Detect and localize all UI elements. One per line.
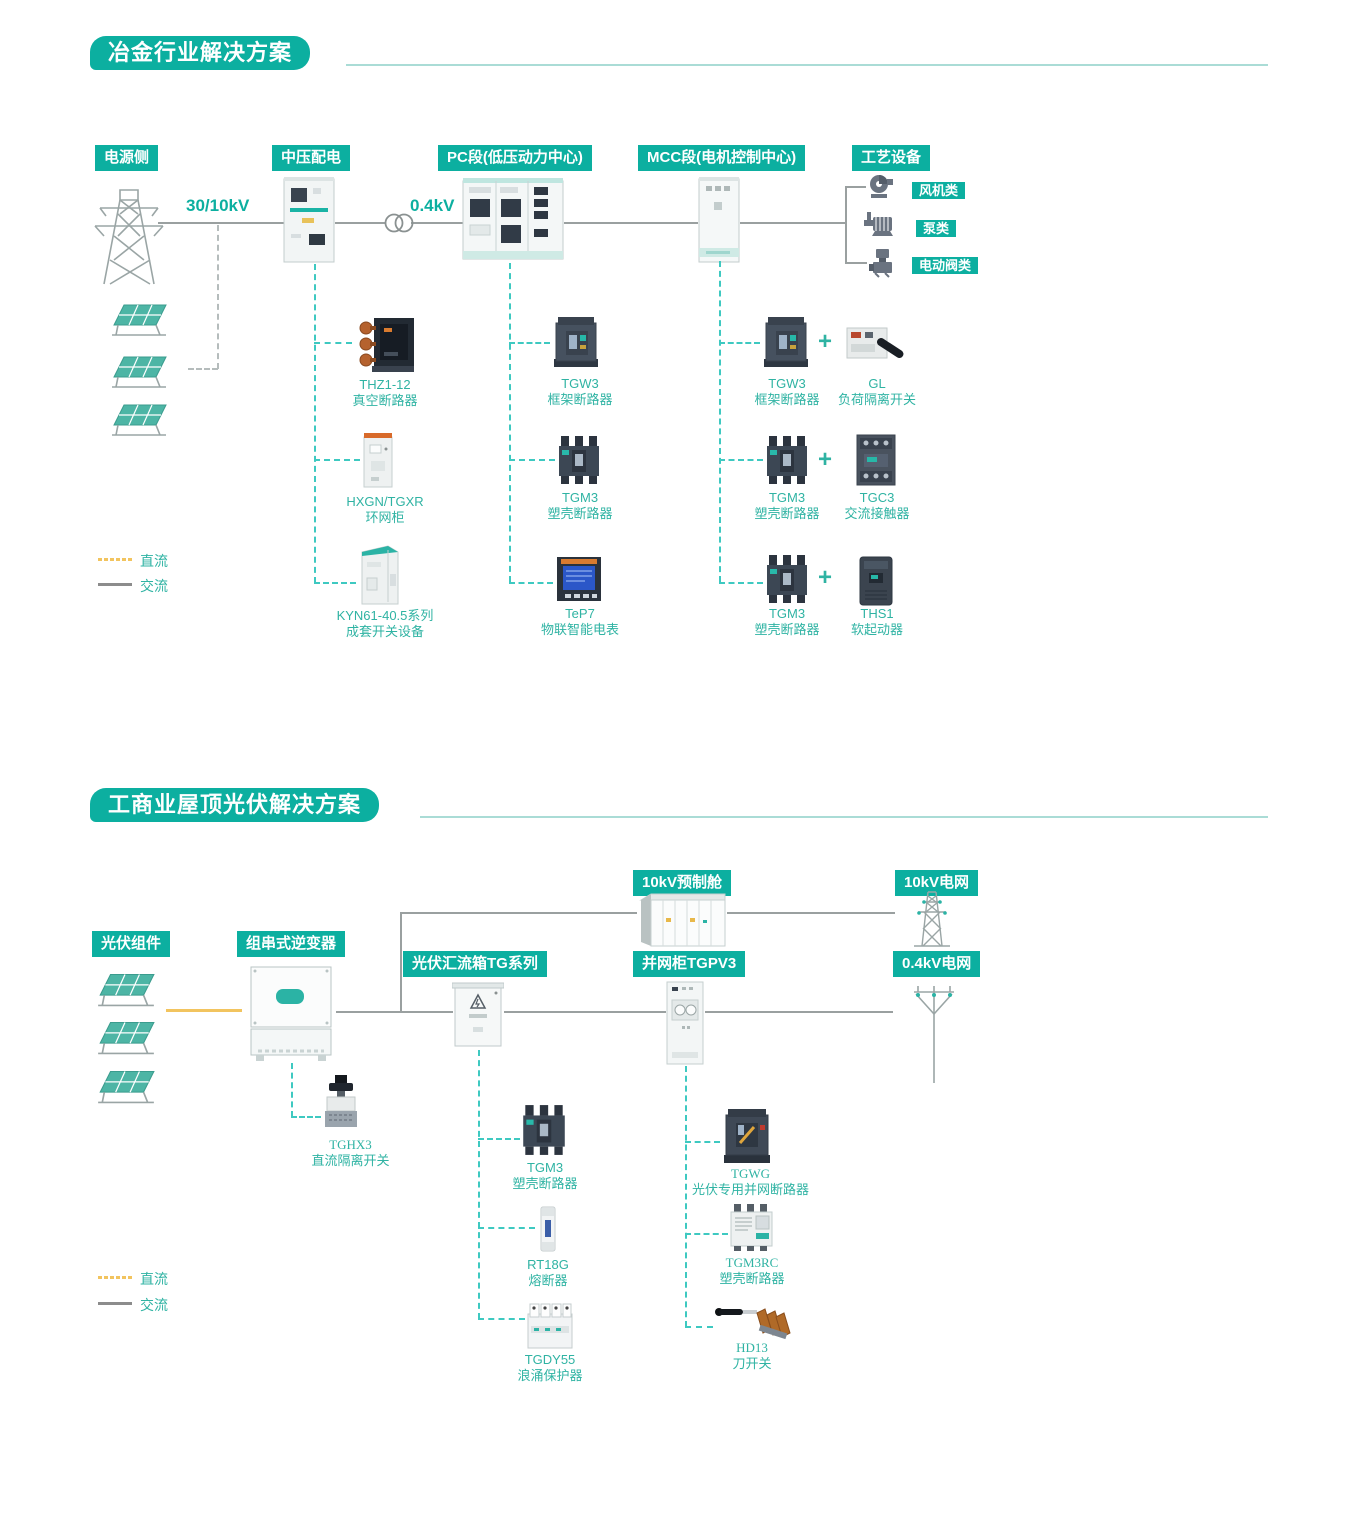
product-label: KYN61-40.5系列 成套开关设备 [320,608,450,641]
solar-panel-image [94,972,158,1008]
hd13-image [713,1303,791,1341]
grid-04kv-pole-image [908,980,960,1085]
tgm3-image [765,434,809,486]
legend-ac-label: 交流 [140,1295,168,1315]
kyn61-image [358,544,400,606]
product-desc: 物联智能电表 [520,622,640,638]
pump-icon [862,210,896,238]
process-label-pump: 泵类 [916,220,956,237]
drop-combiner-column [478,1050,480,1319]
tgdy55-image [526,1300,574,1350]
product-label: TGDY55 浪涌保护器 [490,1352,610,1385]
plus-sign: + [818,448,832,472]
plus-sign: + [818,330,832,354]
product-desc: 软起动器 [822,622,932,638]
header-mcc-section: MCC段(电机控制中心) [638,145,805,171]
drop-mcc-column [719,261,721,582]
header-process-equipment: 工艺设备 [852,145,930,171]
pv-combiner-box-image [452,981,504,1049]
product-model: TGM3 [520,490,640,506]
product-label: TGM3 塑壳断路器 [485,1160,605,1193]
product-desc: 环网柜 [325,510,445,526]
solar-panel-image [108,355,170,389]
process-stub-valve [845,262,867,264]
drop-mv-column [314,264,316,583]
drop-pc-branch-2 [509,459,555,461]
tgwg-image [720,1105,774,1165]
tgm3-image [765,553,809,605]
thz1-12-image [354,314,416,374]
product-desc: 刀开关 [692,1356,812,1372]
drop-mv-branch-3 [314,582,356,584]
product-desc: 塑壳断路器 [520,506,640,522]
legend-dc-line [98,1276,132,1279]
product-model: TGW3 [520,376,640,392]
wire-transformer-to-pc [411,222,463,224]
product-desc: 熔断器 [488,1273,608,1289]
product-desc: 负荷隔离开关 [822,392,932,408]
product-label: THS1 软起动器 [822,606,932,639]
wire-combiner-to-cabinet [504,1011,666,1013]
product-desc: 直流隔离开关 [283,1153,418,1169]
drop-inverter-column [291,1063,293,1117]
pv-feed-dash-horizontal [188,368,218,370]
tghx3-image [320,1073,362,1131]
header-power-side: 电源侧 [95,145,158,171]
prefab-cabin-image [637,890,727,950]
solar-panel-image [108,403,170,437]
transmission-tower-image [92,184,166,288]
product-model: TGHX3 [283,1137,418,1153]
process-bracket [845,186,847,264]
product-model: THS1 [822,606,932,622]
grid-10kv-tower-image [908,888,956,950]
legend-dc-label: 直流 [140,1269,168,1289]
legend-dc-label: 直流 [140,551,168,571]
process-label-valve: 电动阀类 [912,257,978,274]
product-model: RT18G [488,1257,608,1273]
product-label: TGM3 塑壳断路器 [520,490,640,523]
tgc3-image [854,432,898,488]
drop-mcc-branch-1 [719,342,760,344]
product-desc: 浪涌保护器 [490,1368,610,1384]
wire-branch-up [400,912,402,1013]
solar-panel-image [94,1020,158,1056]
tgm3-image [520,1103,568,1157]
drop-combiner-branch-2 [478,1227,535,1229]
product-desc: 光伏专用并网断路器 [663,1182,838,1198]
product-model: HD13 [692,1340,812,1356]
product-model: TeP7 [520,606,640,622]
drop-grid-branch-1 [685,1141,720,1143]
tgw3-image [762,315,810,369]
product-desc: 真空断路器 [325,393,445,409]
product-desc: 成套开关设备 [320,624,450,640]
wire-mv-to-transformer [335,222,385,224]
header-string-inverter: 组串式逆变器 [237,931,345,957]
wire-mcc-to-process [740,222,846,224]
solar-panel-image [94,1069,158,1105]
mcc-cabinet-image [698,176,740,264]
product-desc: 塑壳断路器 [692,1271,812,1287]
header-pv-combiner: 光伏汇流箱TG系列 [403,951,547,977]
product-label: TGWG 光伏专用并网断路器 [663,1166,838,1199]
product-label: TGC3 交流接触器 [822,490,932,523]
drop-pc-branch-1 [509,342,550,344]
drop-mcc-branch-2 [719,459,763,461]
grid-cabinet-tgpv3-image [665,980,705,1066]
tep7-image [555,555,603,603]
header-grid-cabinet: 并网柜TGPV3 [633,951,745,977]
drop-combiner-branch-3 [478,1318,525,1320]
mv-cabinet-image [283,176,335,264]
drop-mcc-branch-3 [719,582,763,584]
product-model: HXGN/TGXR [325,494,445,510]
section1-title-rule [346,64,1268,66]
voltage-label-30-10kv: 30/10kV [186,196,249,216]
product-model: TGM3 [485,1160,605,1176]
ths1-image [858,555,894,607]
product-model: KYN61-40.5系列 [320,608,450,624]
wire-inverter-to-combiner [336,1011,453,1013]
header-pc-section: PC段(低压动力中心) [438,145,592,171]
legend-ac-line [98,1302,132,1305]
solutions-diagram-page: 冶金行业解决方案 电源侧 中压配电 PC段(低压动力中心) MCC段(电机控制中… [0,0,1350,1528]
wire-pv-to-inverter-dc [166,1009,242,1012]
product-desc: 框架断路器 [520,392,640,408]
section2-title-rule [420,816,1268,818]
gl-switch-image [845,322,907,368]
wire-prefab-to-grid10 [727,912,895,914]
wire-pc-to-mcc [564,222,698,224]
product-model: TGWG [663,1166,838,1182]
drop-mv-branch-1 [314,342,352,344]
wire-cabinet-to-grid04 [705,1011,893,1013]
plus-sign: + [818,566,832,590]
string-inverter-image [246,963,336,1063]
product-model: GL [822,376,932,392]
product-label: GL 负荷隔离开关 [822,376,932,409]
fan-icon [866,172,894,200]
voltage-label-0-4kv: 0.4kV [410,196,454,216]
product-label: TGHX3 直流隔离开关 [283,1137,418,1170]
header-pv-modules: 光伏组件 [92,931,170,957]
drop-combiner-branch-1 [478,1138,520,1140]
process-label-fan: 风机类 [912,182,965,199]
tgm3rc-image [728,1202,775,1252]
motor-valve-icon [867,248,897,278]
pc-cabinet-image [462,177,564,263]
product-model: TGC3 [822,490,932,506]
product-model: THZ1-12 [325,377,445,393]
drop-grid-branch-2 [685,1233,728,1235]
product-label: HXGN/TGXR 环网柜 [325,494,445,527]
solar-panel-image [108,303,170,337]
legend-dc-line [98,558,132,561]
header-mv-distribution: 中压配电 [272,145,350,171]
section2-title: 工商业屋顶光伏解决方案 [90,788,379,822]
product-model: TGDY55 [490,1352,610,1368]
rt18g-image [536,1205,560,1253]
header-grid-04kv: 0.4kV电网 [893,951,980,977]
product-desc: 交流接触器 [822,506,932,522]
product-model: TGM3RC [692,1255,812,1271]
drop-grid-branch-3 [685,1326,713,1328]
tgm3-image [557,434,601,486]
section1-title: 冶金行业解决方案 [90,36,310,70]
tgw3-image [552,315,600,369]
wire-branch-to-prefab [400,912,637,914]
process-stub-fan [845,186,866,188]
product-label: RT18G 熔断器 [488,1257,608,1290]
pv-feed-dash-vertical [217,225,219,369]
product-label: TGW3 框架断路器 [520,376,640,409]
drop-inverter-branch [291,1116,321,1118]
drop-pc-column [509,263,511,582]
product-desc: 塑壳断路器 [485,1176,605,1192]
legend-ac-label: 交流 [140,576,168,596]
drop-mv-branch-2 [314,459,360,461]
transformer-symbol [383,211,415,235]
legend-ac-line [98,583,132,586]
wire-tower-to-mv [158,222,284,224]
hxgn-tgxr-image [362,431,394,489]
drop-pc-branch-3 [509,582,553,584]
product-label: THZ1-12 真空断路器 [325,377,445,410]
product-label: TGM3RC 塑壳断路器 [692,1255,812,1288]
product-label: TeP7 物联智能电表 [520,606,640,639]
product-label: HD13 刀开关 [692,1340,812,1373]
